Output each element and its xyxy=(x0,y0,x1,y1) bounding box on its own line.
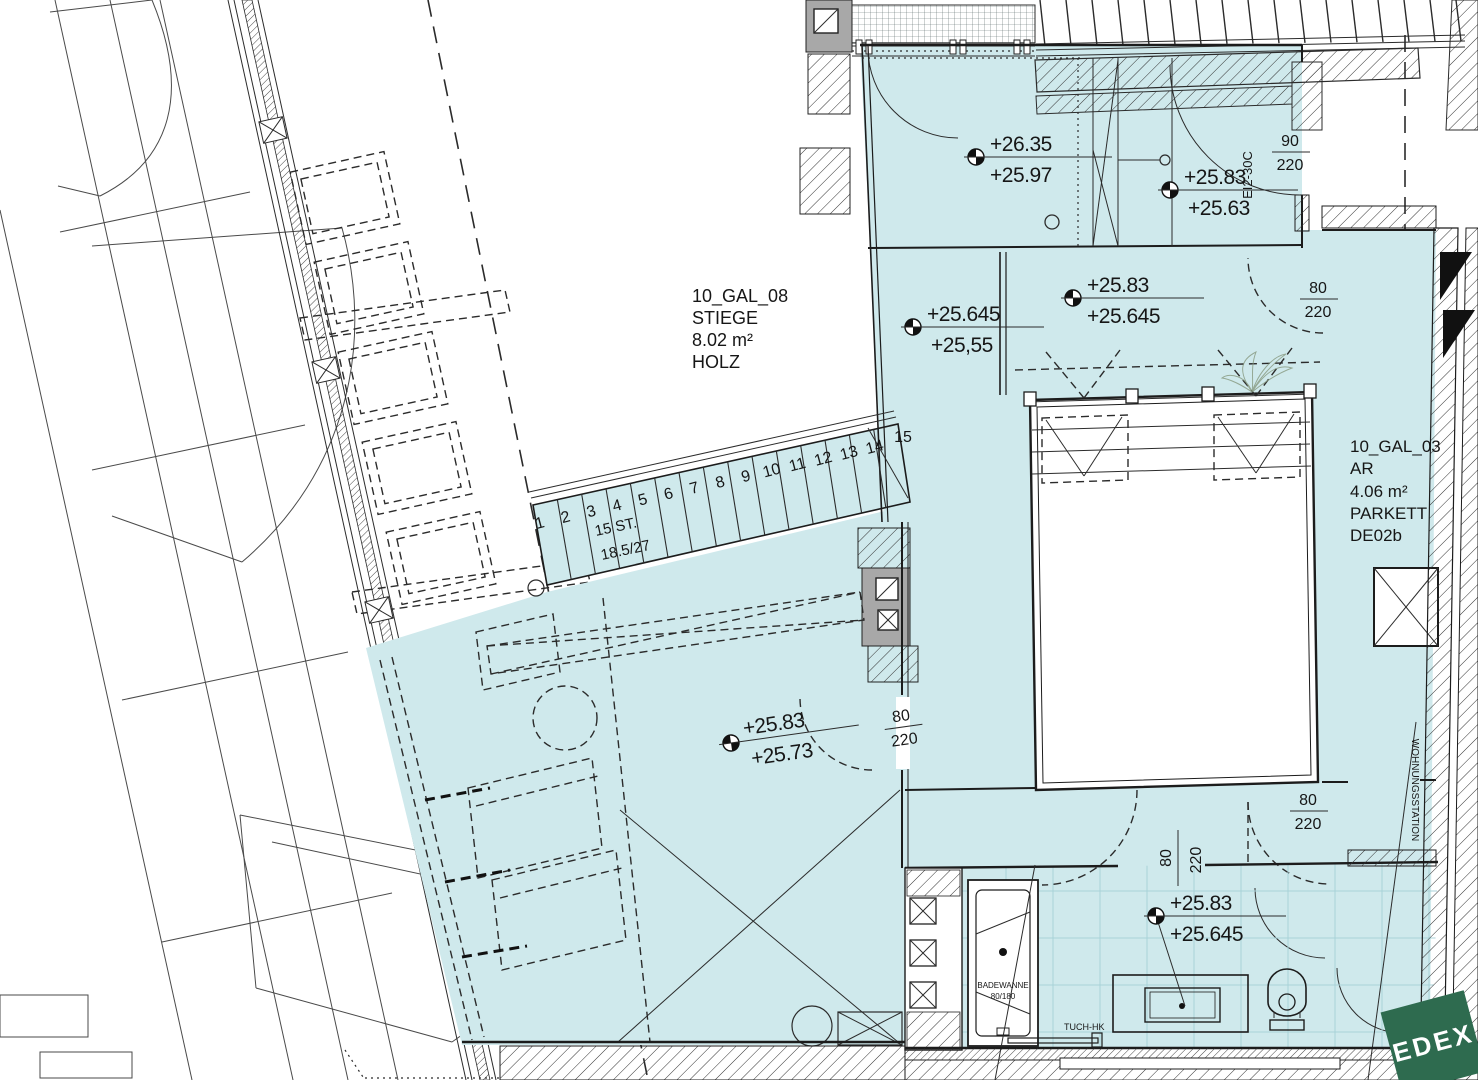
door-width: 80 xyxy=(891,707,911,726)
door-height: 220 xyxy=(1277,157,1304,174)
level-upper: +25.83 xyxy=(1170,892,1232,915)
room-area: 8.02 m² xyxy=(692,330,753,350)
door-height: 220 xyxy=(1305,304,1332,321)
corner-wall-hatch xyxy=(1446,0,1478,130)
door-fire-rating: EI2-30C xyxy=(1240,151,1255,199)
bottom-wall xyxy=(345,1042,1478,1080)
central-void xyxy=(1015,348,1320,790)
level-upper: +26.35 xyxy=(990,133,1052,156)
door-width: 80 xyxy=(1158,849,1175,867)
roof-detail-box xyxy=(40,1052,132,1078)
door-height: 220 xyxy=(1295,816,1322,833)
room-finish: PARKETT xyxy=(1350,504,1427,523)
facade-brace xyxy=(365,597,393,624)
living-room-fill xyxy=(366,505,910,1045)
floorplan-canvas: 1234567891011121314 15 15 ST. 18.5/27 xyxy=(0,0,1478,1080)
room-name: AR xyxy=(1350,459,1374,478)
door-width: 80 xyxy=(1309,280,1327,297)
floorplan-drawing: 1234567891011121314 15 15 ST. 18.5/27 xyxy=(0,0,1478,1080)
roof-curved-panel-top xyxy=(50,0,171,196)
roof-detail-box xyxy=(0,995,88,1037)
room-label-stiege: 10_GAL_08 STIEGE 8.02 m² HOLZ xyxy=(692,286,788,372)
level-lower: +25.645 xyxy=(1170,923,1243,946)
rooflight-box xyxy=(386,512,496,605)
room-area: 4.06 m² xyxy=(1350,482,1408,501)
rooflight-box xyxy=(362,422,472,515)
level-upper: +25.83 xyxy=(1184,166,1246,189)
wohnungsstation-label: WOHNUNGSSTATION xyxy=(1409,739,1420,841)
bathtub-label: BADEWANNE xyxy=(977,981,1028,990)
room-code: 10_GAL_03 xyxy=(1350,437,1441,456)
level-lower: +25.645 xyxy=(1087,305,1160,328)
bathtub-size-label: 80/180 xyxy=(991,992,1016,1001)
level-lower: +25,55 xyxy=(931,334,993,357)
room-detail: DE02b xyxy=(1350,526,1402,545)
bath-shaft-strip xyxy=(905,868,962,1050)
facade-brace xyxy=(259,117,287,144)
rooflight-box xyxy=(314,242,424,335)
towel-radiator-label: TUCH-HK xyxy=(1064,1022,1105,1032)
level-lower: +25.63 xyxy=(1188,197,1250,220)
stair-step-15: 15 xyxy=(894,429,912,446)
room-finish: HOLZ xyxy=(692,352,740,372)
wall-step-block xyxy=(1292,62,1322,130)
door-width: 80 xyxy=(1299,792,1317,809)
rooflight-box xyxy=(338,332,448,425)
door-width: 90 xyxy=(1281,133,1299,150)
room-code: 10_GAL_08 xyxy=(692,286,788,307)
level-lower: +25.97 xyxy=(990,164,1052,187)
facade-brace xyxy=(312,357,340,384)
shaft-pillar-top xyxy=(800,0,852,214)
level-upper: +25.645 xyxy=(927,303,1000,326)
door-height: 220 xyxy=(1188,847,1205,874)
room-name: STIEGE xyxy=(692,308,758,328)
level-upper: +25.83 xyxy=(1087,274,1149,297)
